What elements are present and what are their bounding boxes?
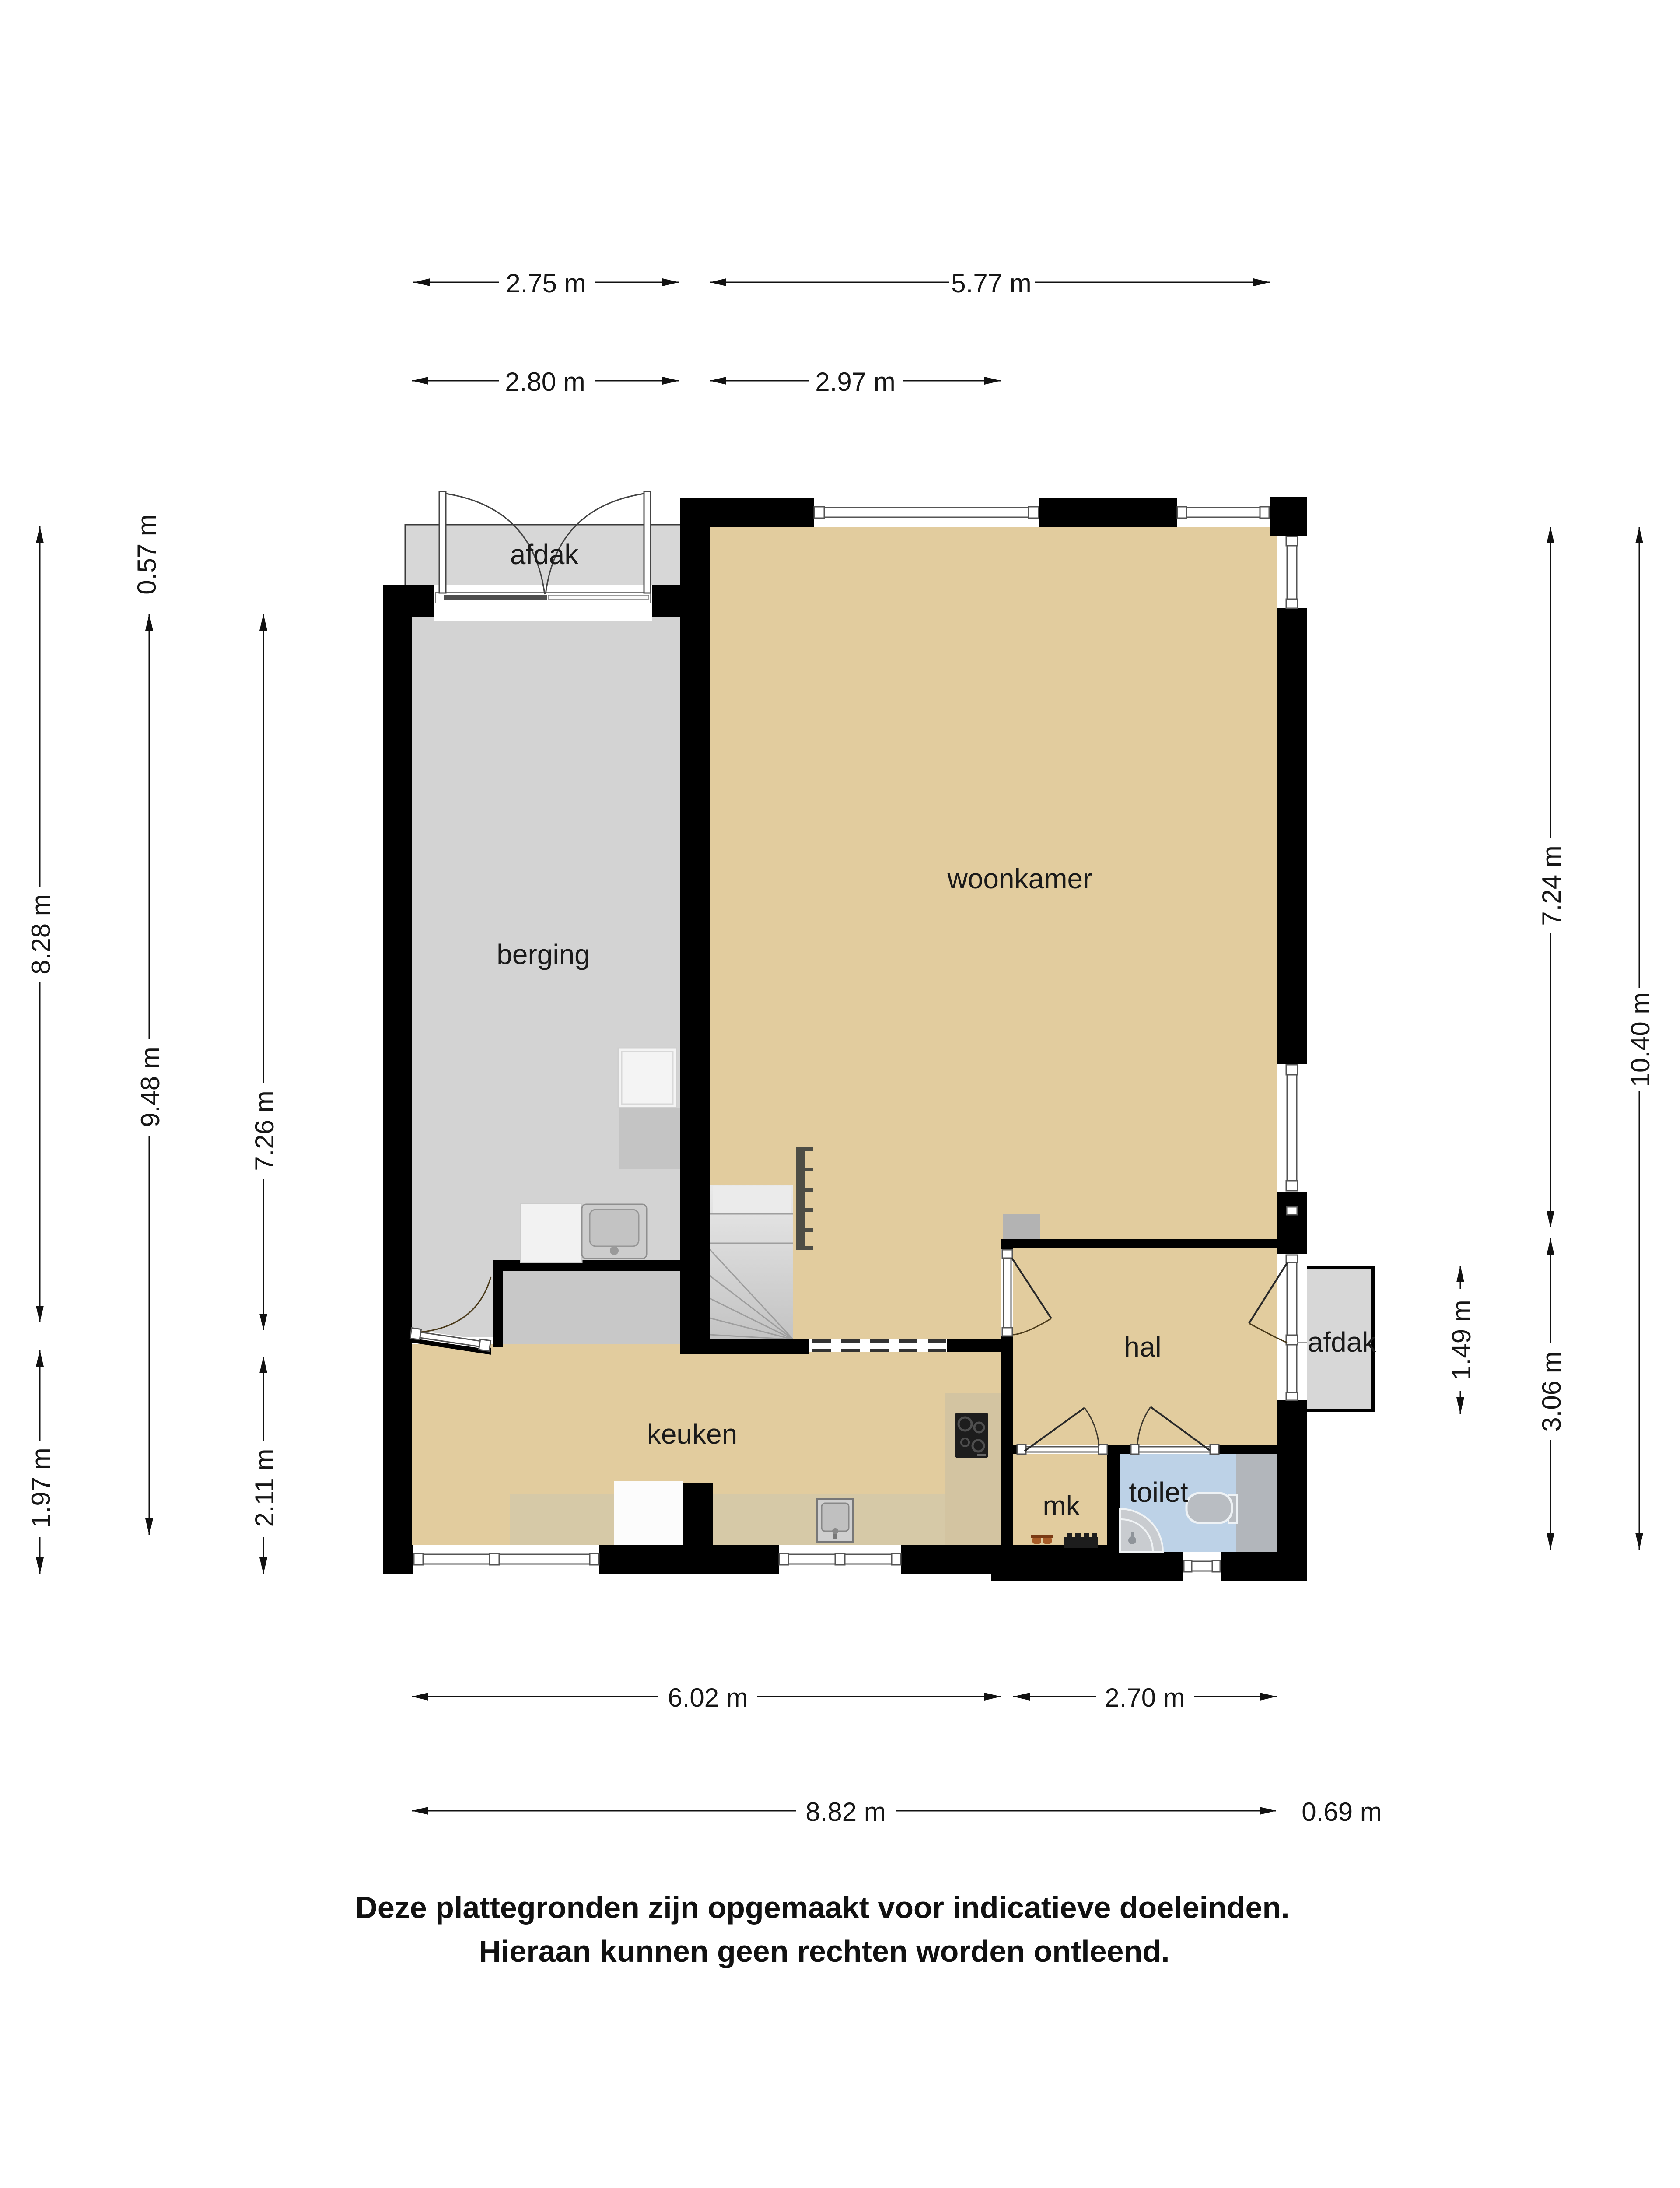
- svg-text:afdak: afdak: [1308, 1326, 1377, 1358]
- svg-text:2.75 m: 2.75 m: [506, 269, 586, 298]
- svg-text:9.48 m: 9.48 m: [136, 1047, 165, 1127]
- svg-text:10.40 m: 10.40 m: [1626, 992, 1655, 1087]
- svg-text:2.70 m: 2.70 m: [1105, 1683, 1185, 1712]
- svg-text:Hieraan kunnen geen rechten wo: Hieraan kunnen geen rechten worden ontle…: [479, 1934, 1169, 1968]
- svg-text:8.82 m: 8.82 m: [805, 1797, 885, 1827]
- svg-text:toilet: toilet: [1129, 1476, 1188, 1508]
- svg-text:7.26 m: 7.26 m: [250, 1090, 279, 1171]
- svg-text:5.77 m: 5.77 m: [951, 269, 1031, 298]
- svg-text:1.49 m: 1.49 m: [1447, 1300, 1476, 1380]
- svg-text:3.06 m: 3.06 m: [1537, 1351, 1566, 1431]
- svg-text:woonkamer: woonkamer: [947, 863, 1092, 894]
- svg-text:2.80 m: 2.80 m: [505, 367, 585, 396]
- svg-text:6.02 m: 6.02 m: [668, 1683, 748, 1712]
- svg-text:mk: mk: [1043, 1490, 1080, 1522]
- svg-text:2.11 m: 2.11 m: [250, 1449, 279, 1527]
- svg-text:0.57 m: 0.57 m: [132, 514, 161, 594]
- svg-text:keuken: keuken: [647, 1418, 737, 1450]
- svg-text:2.97 m: 2.97 m: [815, 367, 895, 396]
- svg-text:1.97 m: 1.97 m: [26, 1448, 56, 1528]
- svg-text:0.69 m: 0.69 m: [1302, 1797, 1382, 1827]
- svg-text:7.24 m: 7.24 m: [1537, 845, 1566, 926]
- svg-text:Deze plattegronden zijn opgema: Deze plattegronden zijn opgemaakt voor i…: [355, 1890, 1289, 1925]
- svg-text:berging: berging: [497, 939, 590, 970]
- svg-text:afdak: afdak: [510, 539, 579, 570]
- svg-text:hal: hal: [1124, 1331, 1161, 1363]
- svg-text:8.28 m: 8.28 m: [26, 894, 56, 974]
